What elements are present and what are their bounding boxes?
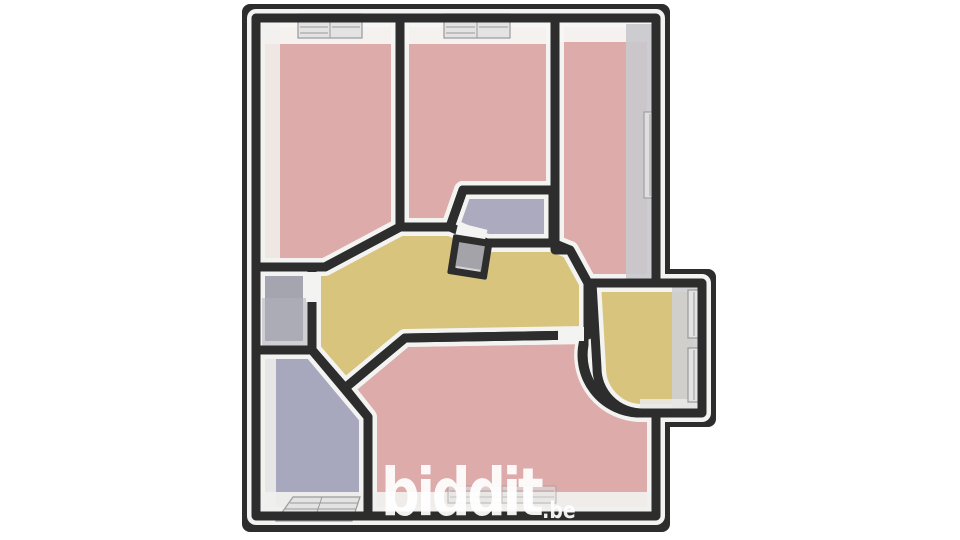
watermark-logo: biddit.be xyxy=(381,460,574,526)
chimney-duct xyxy=(447,234,493,280)
hall-door-opening xyxy=(558,327,584,341)
watermark-tld: .be xyxy=(542,498,575,524)
floorplan-page: biddit.be xyxy=(0,0,960,540)
closet-door-opening xyxy=(306,272,317,302)
watermark-brand: biddit xyxy=(381,454,541,531)
